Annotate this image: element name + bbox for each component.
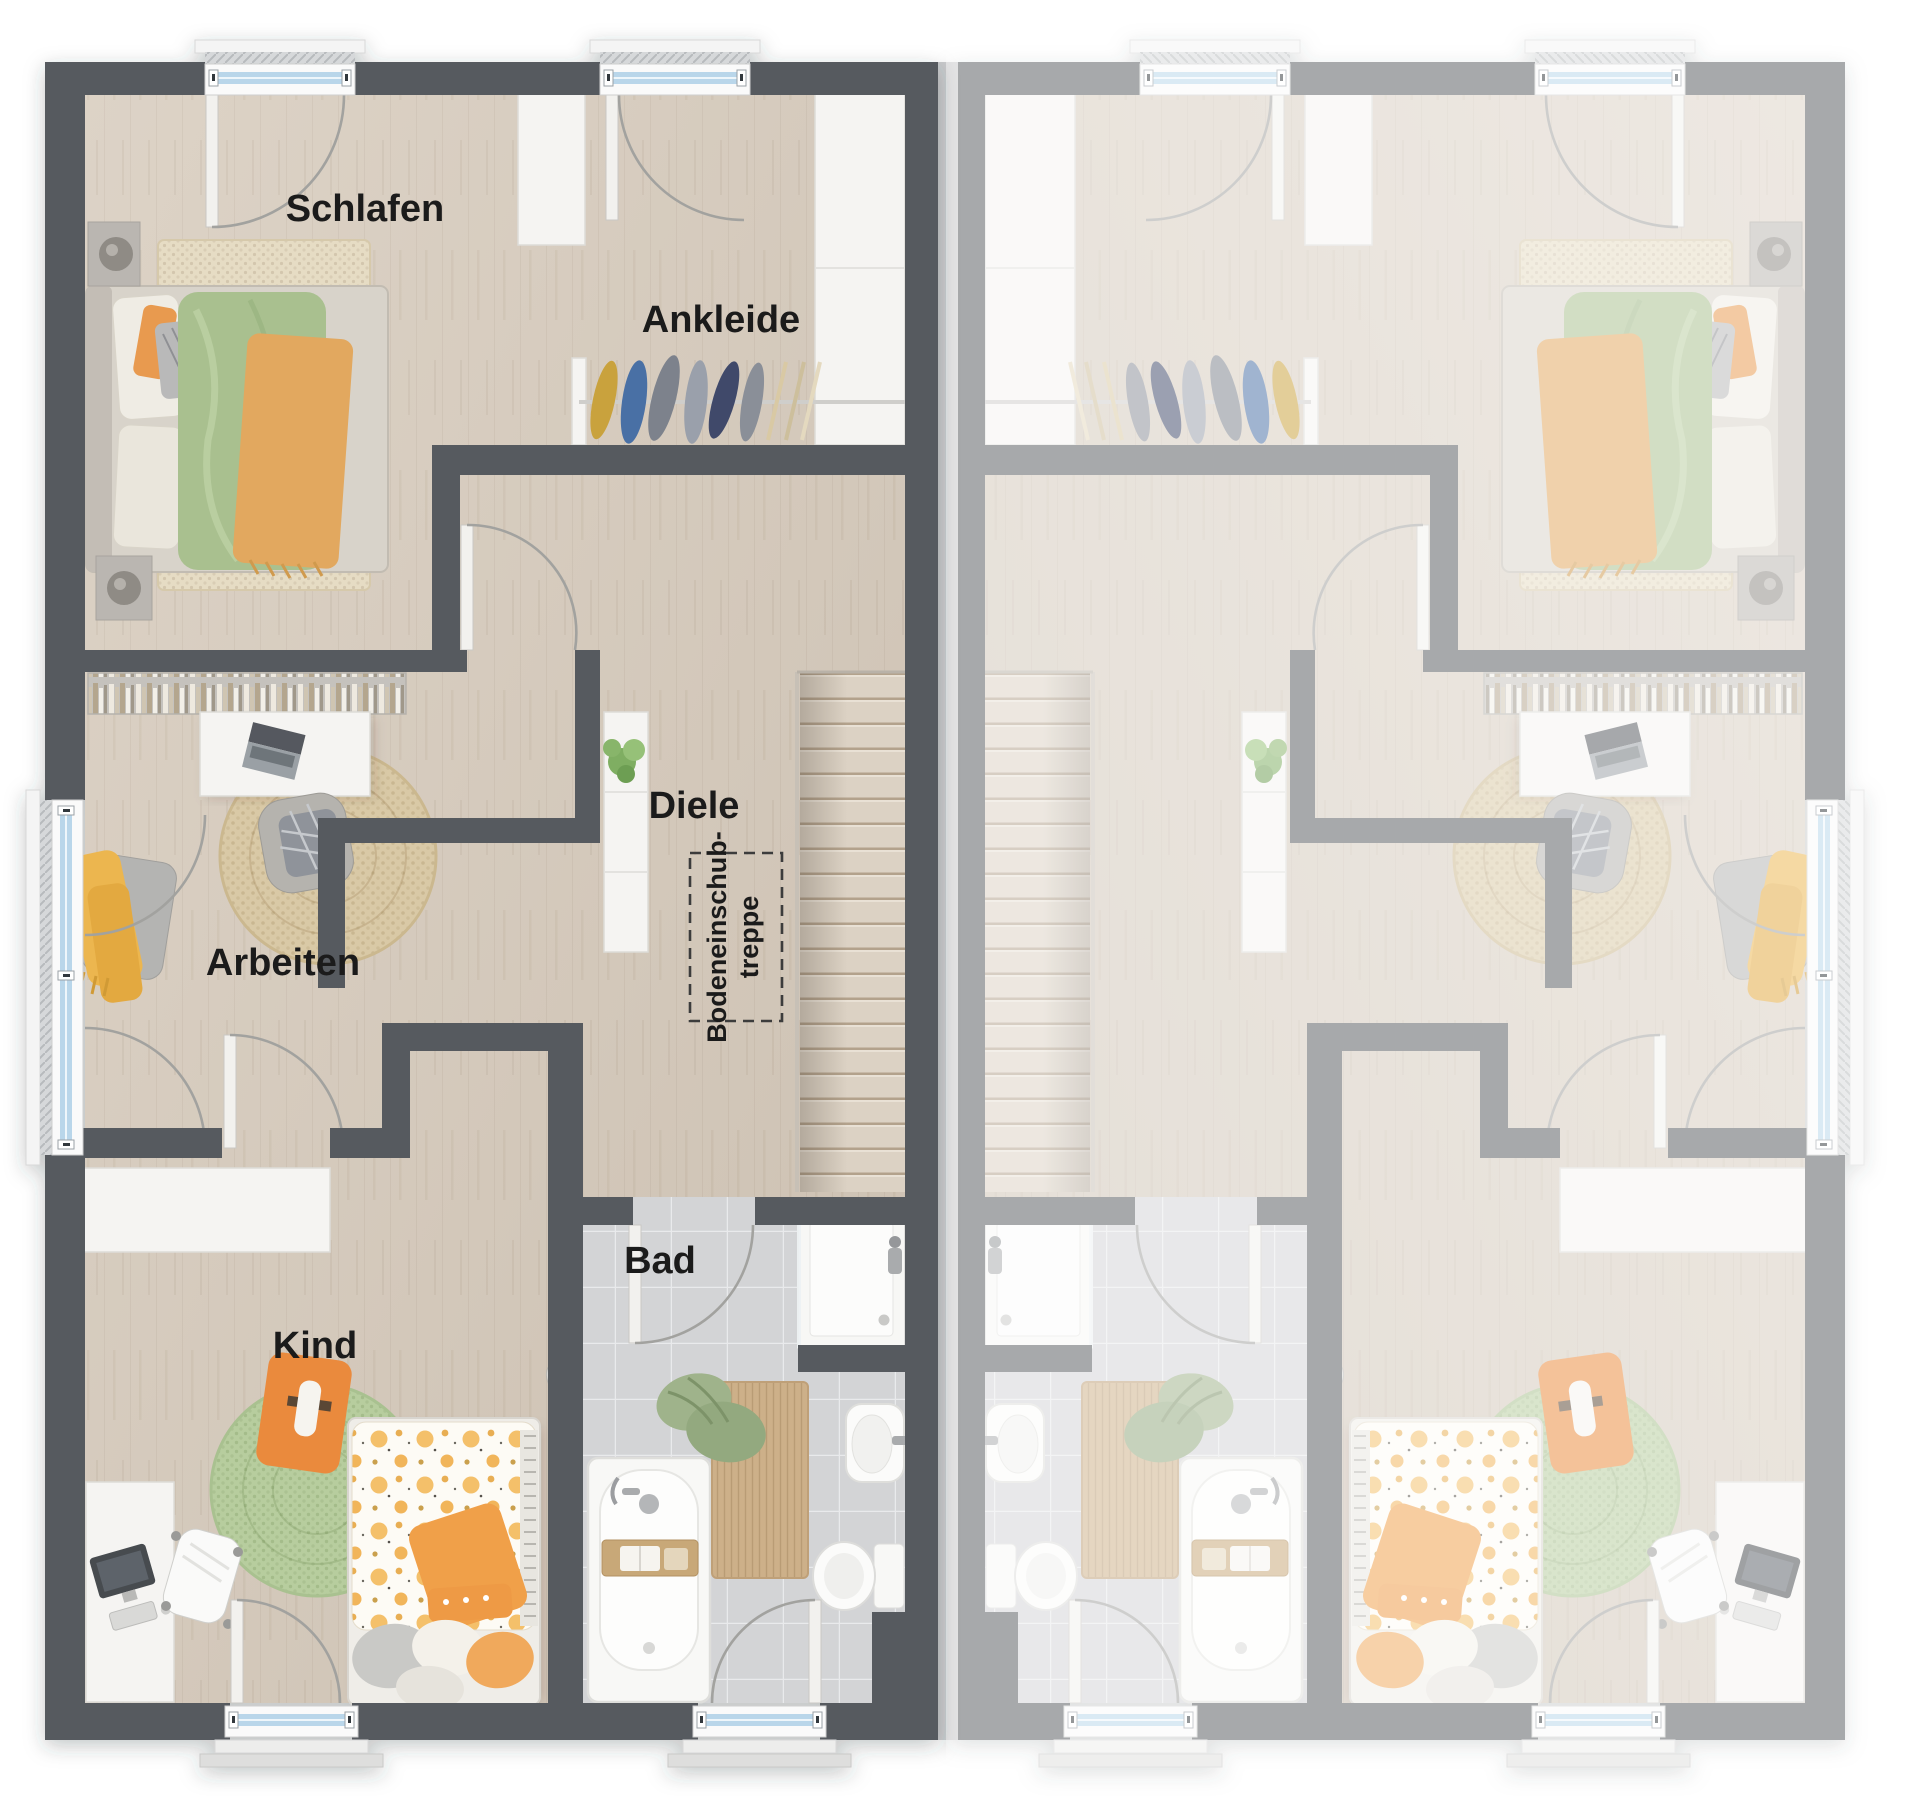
attic-label-line2: treppe [734, 896, 764, 979]
room-label-schlafen: Schlafen [286, 188, 444, 230]
room-label-arbeiten: Arbeiten [206, 942, 360, 984]
room-label-ankleide: Ankleide [642, 299, 800, 341]
room-label-diele: Diele [649, 785, 740, 827]
floor-plan: Schlafen Ankleide Diele Arbeiten Kind Ba… [0, 0, 1920, 1803]
room-label-kind: Kind [273, 1325, 357, 1367]
attic-label-line1: Bodeneinschub- [702, 831, 732, 1043]
room-label-bad: Bad [624, 1240, 696, 1282]
fade-overlay [946, 0, 1920, 1803]
main-unit [26, 40, 938, 1767]
